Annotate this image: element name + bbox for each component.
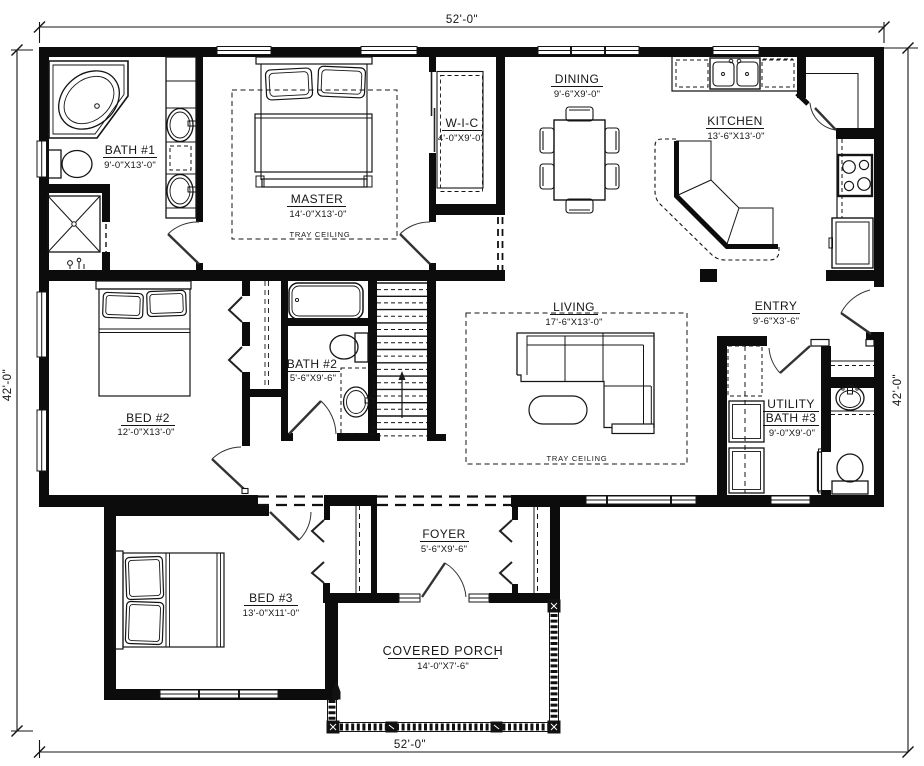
svg-text:KITCHEN: KITCHEN [707,114,762,128]
svg-text:ENTRY: ENTRY [755,299,797,313]
svg-text:FOYER: FOYER [422,527,465,541]
svg-text:5'-6"X9'-6": 5'-6"X9'-6" [421,544,467,555]
svg-text:13'-6"X13'-0": 13'-6"X13'-0" [707,131,764,142]
svg-text:DINING: DINING [555,72,599,86]
svg-text:42'-0": 42'-0" [2,369,14,401]
svg-text:UTILITY: UTILITY [767,397,814,411]
svg-text:52'-0": 52'-0" [446,14,478,26]
svg-text:TRAY CEILING: TRAY CEILING [546,454,607,463]
svg-text:5'-6"X9'-6": 5'-6"X9'-6" [290,373,336,384]
svg-text:BATH #3: BATH #3 [766,411,817,425]
svg-text:BED #3: BED #3 [249,591,293,605]
svg-text:42'-0": 42'-0" [892,374,904,406]
svg-text:MASTER: MASTER [291,192,343,206]
svg-text:BED #2: BED #2 [126,411,170,425]
svg-text:4'-0"X9'-0": 4'-0"X9'-0" [438,133,484,144]
svg-text:17'-6"X13'-0": 17'-6"X13'-0" [545,317,602,328]
svg-text:LIVING: LIVING [553,300,595,314]
svg-text:12'-0"X13'-0": 12'-0"X13'-0" [117,427,174,438]
svg-text:9'-6"X3'-6": 9'-6"X3'-6" [753,316,799,327]
svg-text:14'-0"X13'-0": 14'-0"X13'-0" [289,209,346,220]
svg-text:BATH #1: BATH #1 [105,143,156,157]
svg-text:9'-6"X9'-0": 9'-6"X9'-0" [554,89,600,100]
svg-text:BATH #2: BATH #2 [287,357,338,371]
svg-text:13'-0"X11'-0": 13'-0"X11'-0" [243,608,300,619]
svg-text:9'-0"X9'-0": 9'-0"X9'-0" [769,428,815,439]
svg-text:COVERED PORCH: COVERED PORCH [383,644,504,658]
svg-text:9'-0"X13'-0": 9'-0"X13'-0" [104,160,156,171]
svg-text:14'-0"X7'-6": 14'-0"X7'-6" [417,661,469,672]
svg-text:52'-0": 52'-0" [394,739,426,751]
svg-text:W-I-C: W-I-C [445,116,478,130]
svg-text:TRAY CEILING: TRAY CEILING [289,230,350,239]
